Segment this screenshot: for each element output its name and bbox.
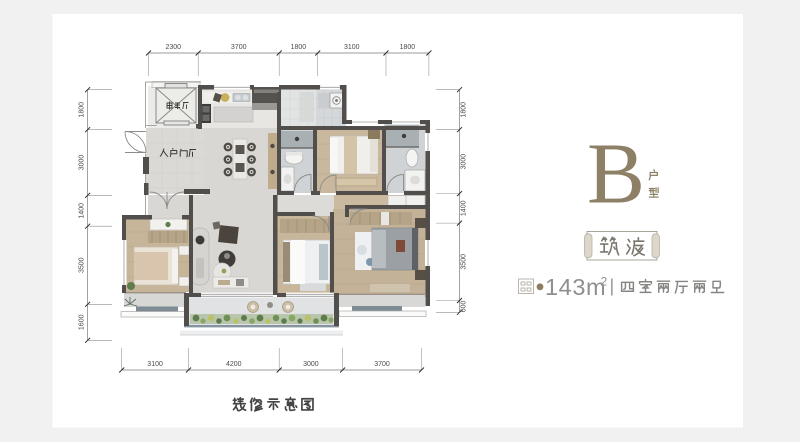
svg-text:3700: 3700 [231, 44, 247, 51]
svg-text:1800: 1800 [79, 102, 86, 118]
svg-text:2300: 2300 [166, 44, 182, 51]
svg-text:2: 2 [601, 275, 608, 289]
svg-text:3500: 3500 [79, 257, 86, 273]
svg-text:B: B [587, 125, 645, 222]
svg-text:1600: 1600 [79, 314, 86, 330]
svg-text:3000: 3000 [461, 154, 468, 170]
svg-text:3500: 3500 [461, 254, 468, 270]
svg-text:600: 600 [461, 300, 468, 312]
svg-text:1800: 1800 [400, 44, 416, 51]
svg-text:3700: 3700 [374, 361, 390, 368]
svg-text:3100: 3100 [147, 361, 163, 368]
svg-text:1400: 1400 [461, 200, 468, 216]
svg-text:1800: 1800 [461, 102, 468, 118]
svg-text:4200: 4200 [226, 361, 242, 368]
svg-text:3000: 3000 [303, 361, 319, 368]
svg-text:1800: 1800 [291, 44, 307, 51]
svg-text:143m: 143m [545, 274, 606, 300]
svg-text:3000: 3000 [79, 155, 86, 171]
svg-text:3100: 3100 [344, 44, 360, 51]
svg-text:1400: 1400 [79, 203, 86, 219]
